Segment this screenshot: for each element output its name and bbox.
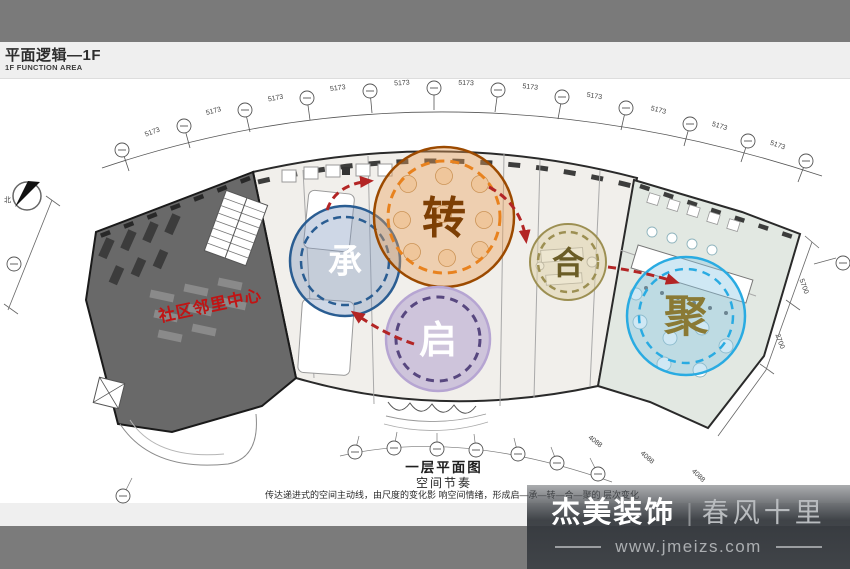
drawing-title: 一层平面图 <box>405 460 483 475</box>
circle-label-cheng: 承 <box>328 243 362 281</box>
dim-4088: 4088 <box>639 450 655 466</box>
dim-4088: 4088 <box>587 434 604 449</box>
north-label: 北 <box>4 196 11 204</box>
circle-label-qi: 启 <box>419 320 457 362</box>
dim-5173: 5173 <box>205 106 222 117</box>
floor-plan-canvas: 5173 5173 5173 5173 5173 5173 5173 5173 … <box>0 0 850 569</box>
dim-5173: 5173 <box>650 105 667 116</box>
north-arrow: 北 <box>4 181 41 210</box>
dim-5173: 5173 <box>394 80 410 88</box>
main-entrance <box>384 402 488 431</box>
url-dash-left <box>555 546 601 548</box>
left-dimension-line <box>4 196 60 314</box>
dim-5173: 5173 <box>267 94 284 104</box>
dim-5173: 5173 <box>144 127 161 139</box>
dim-5700: 5700 <box>797 278 809 295</box>
dim-2700: 2700 <box>773 333 785 350</box>
circle-label-he: 合 <box>552 245 584 281</box>
dim-4088: 4088 <box>690 468 706 484</box>
dim-5173: 5173 <box>769 140 786 152</box>
brand-name: 杰美装饰 <box>551 499 675 528</box>
concept-circle-ju: 聚 <box>627 257 745 375</box>
column <box>342 167 350 175</box>
brand-divider: | <box>686 501 693 526</box>
dim-5173: 5173 <box>522 83 538 92</box>
circle-label-ju: 聚 <box>663 292 709 341</box>
elevator <box>93 377 125 409</box>
logo-box: 杰美装饰 | 春风十里 www.jmeizs.com <box>527 485 850 569</box>
drawing-subtitle: 空间节奏 <box>416 476 472 490</box>
concept-circle-he: 合 <box>530 224 606 300</box>
circle-label-zhuan: 转 <box>422 194 466 243</box>
website-url: www.jmeizs.com <box>615 537 762 557</box>
dim-5173: 5173 <box>458 80 474 88</box>
url-dash-right <box>776 546 822 548</box>
brand-slogan: 春风十里 <box>702 500 826 527</box>
dim-5173: 5173 <box>330 84 346 93</box>
dim-5173: 5173 <box>711 121 728 132</box>
concept-circle-zhuan: 转 <box>374 147 514 287</box>
dim-5173: 5173 <box>586 92 603 102</box>
